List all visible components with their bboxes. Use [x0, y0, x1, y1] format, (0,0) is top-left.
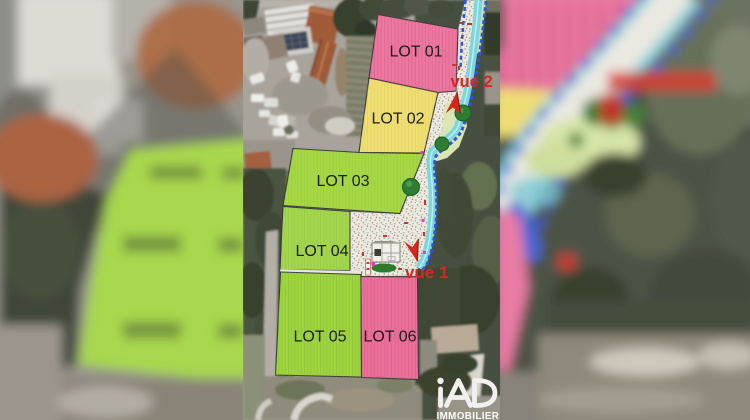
svg-text:LOT 06: LOT 06: [363, 329, 416, 346]
svg-text:LOT 04: LOT 04: [295, 243, 348, 260]
svg-text:LOT 03: LOT 03: [316, 173, 369, 190]
svg-text:vue 1: vue 1: [405, 263, 448, 282]
svg-text:vue 2: vue 2: [451, 73, 493, 91]
svg-text:IMMOBILIER: IMMOBILIER: [437, 411, 500, 420]
svg-text:LOT 01: LOT 01: [389, 44, 442, 61]
svg-text:LOT 02: LOT 02: [371, 111, 424, 128]
svg-text:LOT 05: LOT 05: [293, 329, 346, 346]
